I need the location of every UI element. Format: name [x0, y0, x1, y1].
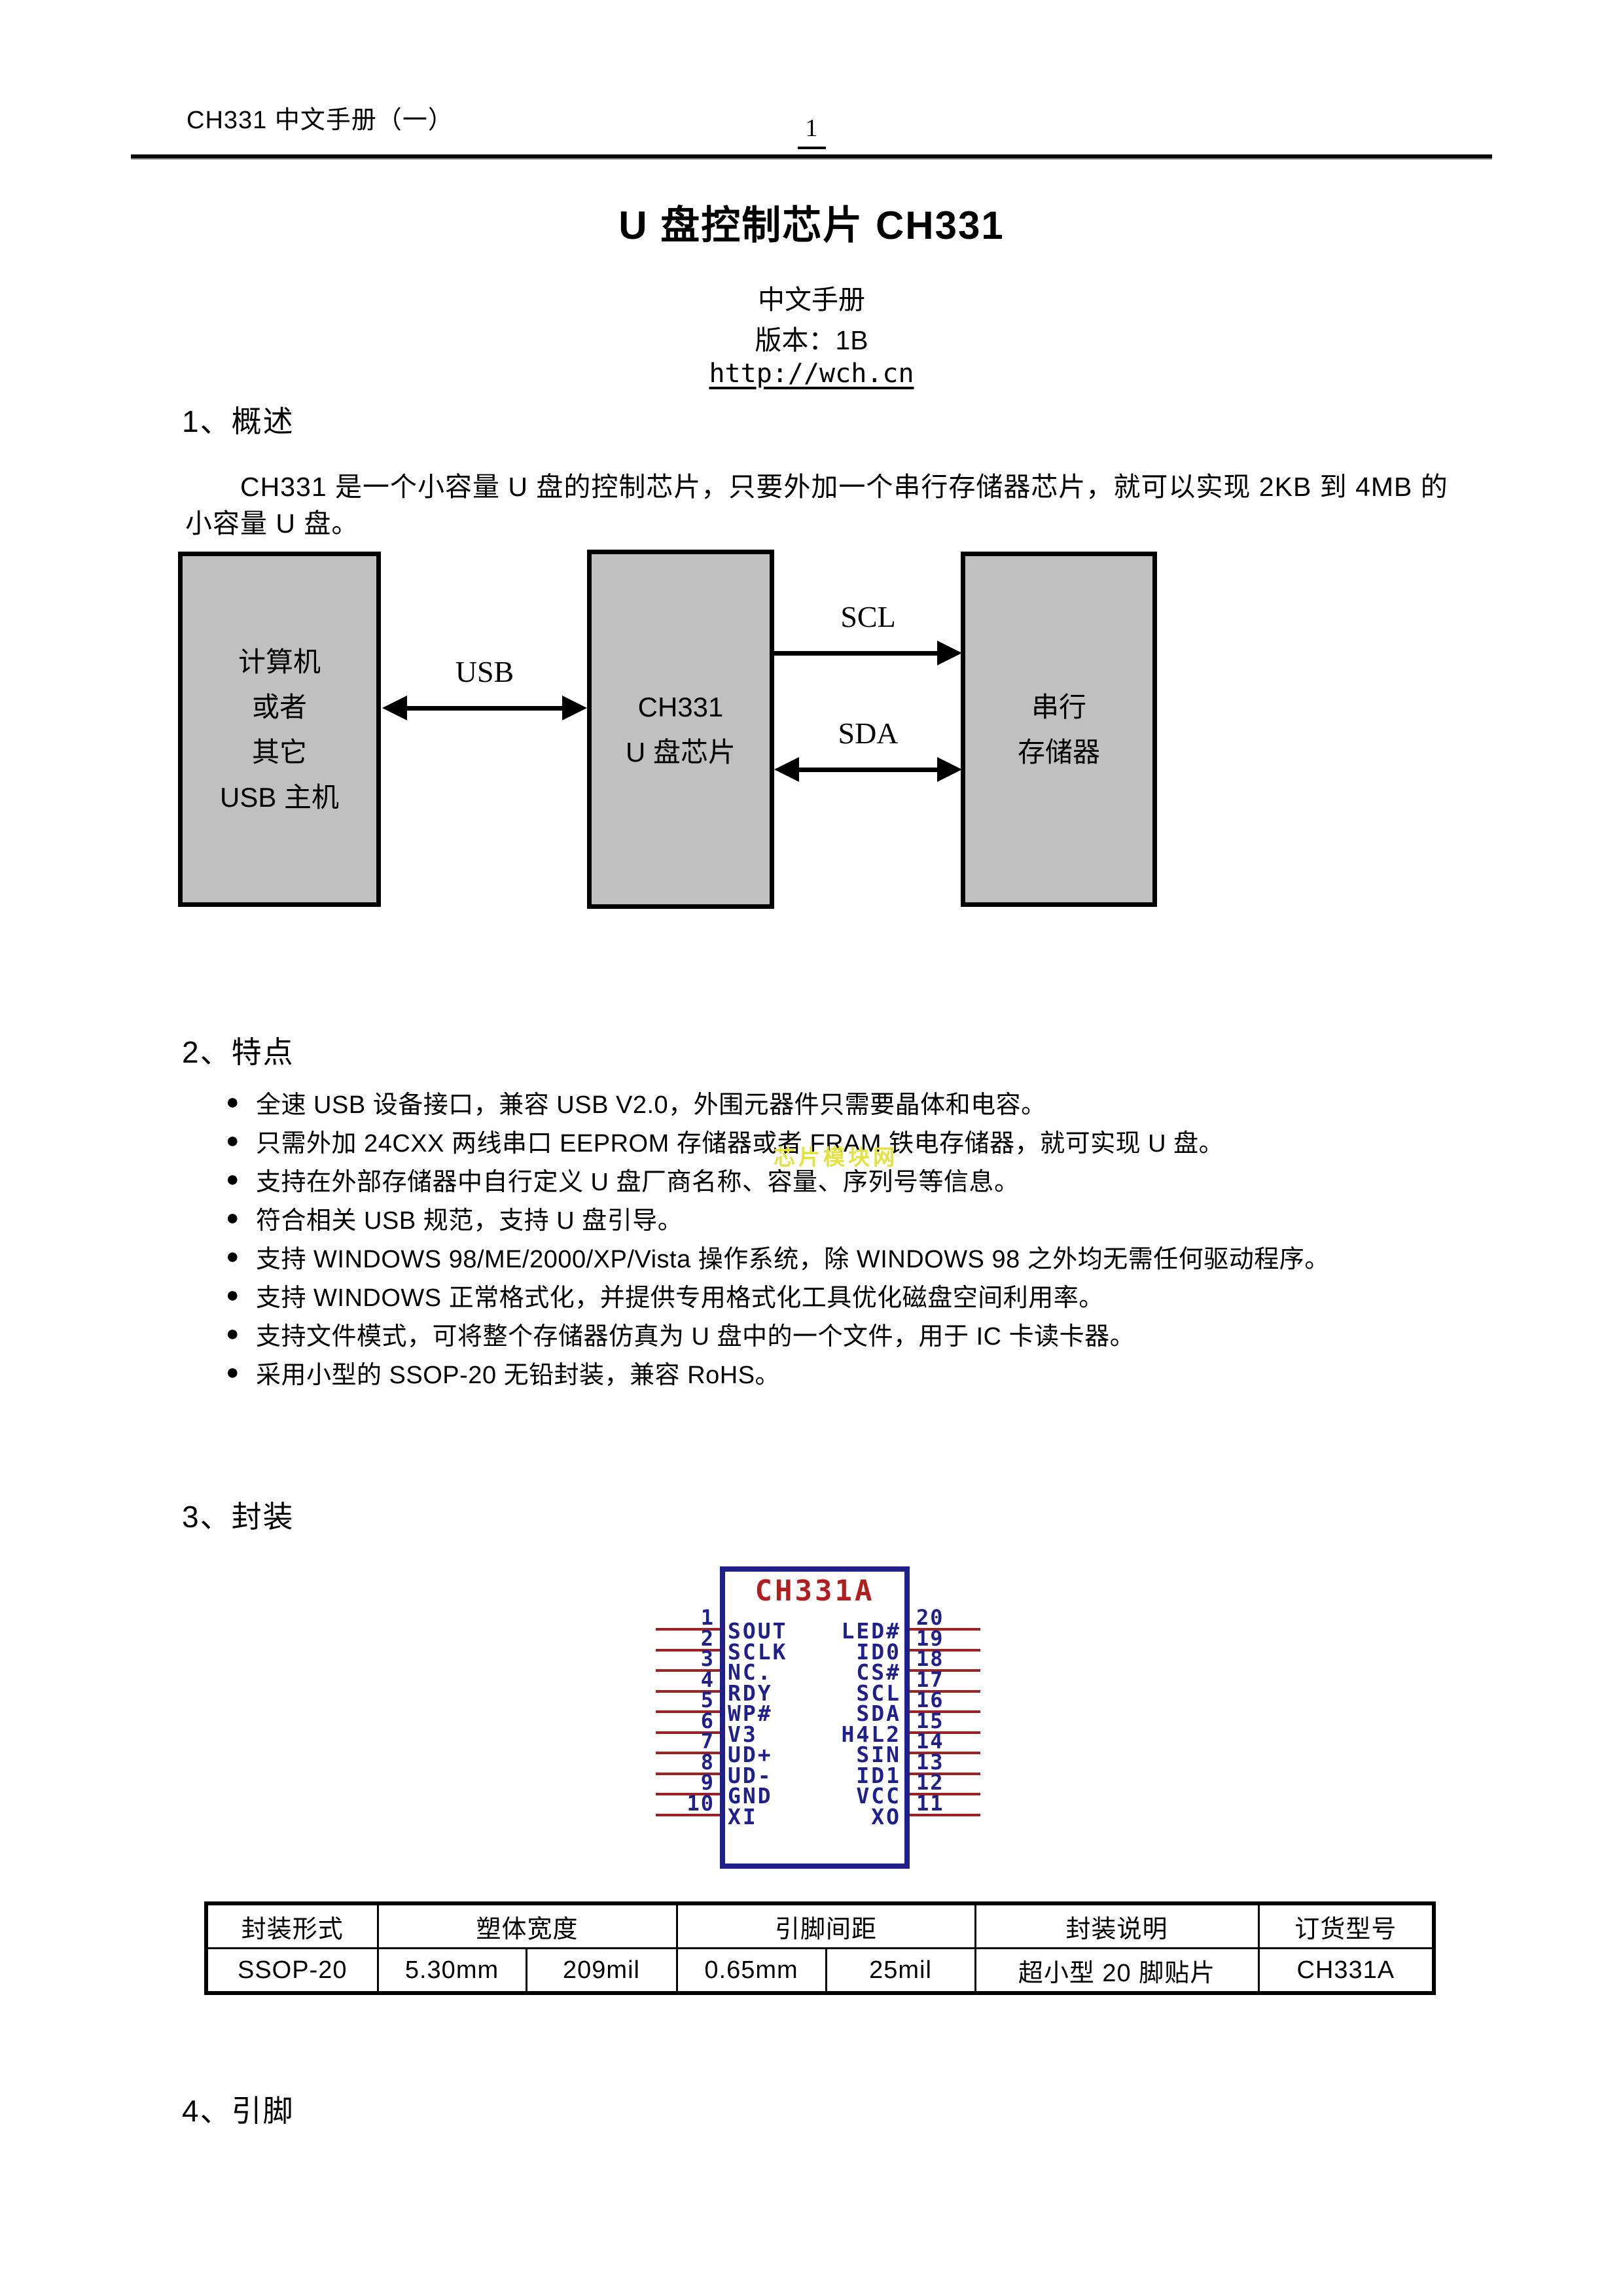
chip-box-line: U 盘芯片	[626, 730, 736, 775]
table-header-cell: 封装说明	[975, 1903, 1258, 1949]
bullet-icon: ●	[226, 1199, 256, 1237]
sda-arrow-label: SDA	[774, 716, 962, 751]
features-list: ●全速 USB 设备接口，兼容 USB V2.0，外围元器件只需要晶体和电容。 …	[226, 1083, 1535, 1392]
section-heading-pins: 4、引脚	[182, 2087, 294, 2130]
table-cell: SSOP-20	[206, 1949, 378, 1994]
feature-item: ●支持 WINDOWS 98/ME/2000/XP/Vista 操作系统，除 W…	[226, 1237, 1535, 1276]
bullet-icon: ●	[226, 1160, 256, 1199]
mem-box-line: 串行	[1031, 684, 1086, 730]
table-cell: 25mil	[826, 1949, 975, 1994]
host-box-line: 其它	[252, 730, 307, 775]
feature-item: ●支持文件模式，可将整个存储器仿真为 U 盘中的一个文件，用于 IC 卡读卡器。	[226, 1315, 1535, 1353]
header-rule	[131, 154, 1492, 160]
pin-label: XI	[728, 1806, 758, 1828]
chip-box-line: CH331	[638, 684, 724, 730]
sda-arrowhead-left-icon	[774, 757, 799, 782]
feature-text: 全速 USB 设备接口，兼容 USB V2.0，外围元器件只需要晶体和电容。	[256, 1084, 1046, 1120]
website-link-row: http://wch.cn	[0, 359, 1623, 389]
diagram-box-ch331: CH331 U 盘芯片	[587, 550, 774, 909]
table-header-cell: 塑体宽度	[378, 1903, 677, 1949]
section-heading-overview: 1、概述	[182, 398, 294, 441]
scl-arrow-line	[774, 651, 940, 656]
pin-number: 11	[916, 1793, 988, 1814]
document-page: CH331 中文手册（一） 1 U 盘控制芯片 CH331 中文手册 版本：1B…	[0, 0, 1623, 2296]
pin-number: 18	[916, 1648, 988, 1669]
pin-number: 9	[654, 1772, 715, 1793]
pin-label: XO	[776, 1806, 901, 1828]
bullet-icon: ●	[226, 1315, 256, 1353]
table-header-cell: 封装形式	[206, 1903, 378, 1949]
package-table-wrap: 封装形式 塑体宽度 引脚间距 封装说明 订货型号 SSOP-20 5.30mm …	[204, 1901, 1436, 1995]
host-box-line: 或者	[252, 684, 307, 730]
page-title: U 盘控制芯片 CH331	[0, 194, 1623, 251]
feature-item: ●支持 WINDOWS 正常格式化，并提供专用格式化工具优化磁盘空间利用率。	[226, 1276, 1535, 1315]
feature-text: 支持文件模式，可将整个存储器仿真为 U 盘中的一个文件，用于 IC 卡读卡器。	[256, 1316, 1135, 1352]
diagram-box-usb-host: 计算机 或者 其它 USB 主机	[178, 552, 381, 907]
table-cell: 209mil	[526, 1949, 677, 1994]
bullet-icon: ●	[226, 1083, 256, 1122]
page-number: 1	[0, 114, 1623, 149]
feature-text: 符合相关 USB 规范，支持 U 盘引导。	[256, 1200, 683, 1236]
mem-box-line: 存储器	[1018, 730, 1100, 775]
sda-arrow-line	[796, 768, 938, 772]
table-cell: CH331A	[1258, 1949, 1434, 1994]
overview-paragraph-line1: CH331 是一个小容量 U 盘的控制芯片，只要外加一个串行存储器芯片，就可以实…	[240, 465, 1448, 504]
section-heading-features: 2、特点	[182, 1029, 294, 1072]
feature-text: 支持 WINDOWS 98/ME/2000/XP/Vista 操作系统，除 WI…	[256, 1239, 1330, 1275]
table-cell: 0.65mm	[677, 1949, 826, 1994]
bullet-icon: ●	[226, 1122, 256, 1160]
table-header-cell: 引脚间距	[677, 1903, 975, 1949]
usb-arrow-line	[404, 706, 564, 711]
website-link[interactable]: http://wch.cn	[709, 359, 914, 389]
bullet-icon: ●	[226, 1276, 256, 1315]
host-box-line: USB 主机	[220, 775, 339, 820]
usb-arrow-label: USB	[382, 654, 587, 689]
manual-subtitle: 中文手册	[0, 277, 1623, 317]
pin-number: 7	[654, 1731, 715, 1752]
feature-text: 采用小型的 SSOP-20 无铅封装，兼容 RoHS。	[256, 1354, 780, 1390]
overview-paragraph-line2: 小容量 U 盘。	[185, 501, 359, 540]
feature-item: ●全速 USB 设备接口，兼容 USB V2.0，外围元器件只需要晶体和电容。	[226, 1083, 1535, 1122]
chip-name: CH331A	[720, 1574, 910, 1608]
pin-number: 1	[654, 1607, 715, 1628]
pin-number: 5	[654, 1689, 715, 1710]
table-header-cell: 订货型号	[1258, 1903, 1434, 1949]
feature-text: 支持在外部存储器中自行定义 U 盘厂商名称、容量、序列号等信息。	[256, 1161, 1020, 1197]
section-heading-package: 3、封装	[182, 1493, 294, 1536]
pin-number: 16	[916, 1689, 988, 1710]
scl-arrowhead-right-icon	[937, 641, 962, 665]
host-box-line: 计算机	[238, 639, 321, 684]
pin-number: 20	[916, 1607, 988, 1628]
chip-pinout-diagram: CH331A 1 SOUT 20 LED# 2 SCLK 19 ID0 3 NC…	[654, 1564, 982, 1878]
scl-arrow-label: SCL	[774, 599, 962, 634]
feature-item: ●符合相关 USB 规范，支持 U 盘引导。	[226, 1199, 1535, 1237]
page-number-value: 1	[798, 114, 826, 149]
package-table: 封装形式 塑体宽度 引脚间距 封装说明 订货型号 SSOP-20 5.30mm …	[204, 1901, 1436, 1995]
bullet-icon: ●	[226, 1237, 256, 1276]
feature-item: ●采用小型的 SSOP-20 无铅封装，兼容 RoHS。	[226, 1353, 1535, 1392]
pin-number: 10	[654, 1793, 715, 1814]
pin-number: 12	[916, 1772, 988, 1793]
table-cell: 超小型 20 脚贴片	[975, 1949, 1258, 1994]
sda-arrowhead-right-icon	[937, 757, 962, 782]
diagram-box-serial-memory: 串行 存储器	[961, 552, 1157, 907]
feature-text: 支持 WINDOWS 正常格式化，并提供专用格式化工具优化磁盘空间利用率。	[256, 1277, 1104, 1313]
usb-arrowhead-left-icon	[382, 696, 407, 720]
table-row: SSOP-20 5.30mm 209mil 0.65mm 25mil 超小型 2…	[206, 1949, 1434, 1994]
table-header-row: 封装形式 塑体宽度 引脚间距 封装说明 订货型号	[206, 1903, 1434, 1949]
pin-number: 3	[654, 1648, 715, 1669]
feature-text: 只需外加 24CXX 两线串口 EEPROM 存储器或者 FRAM 铁电存储器，…	[256, 1123, 1224, 1159]
pin-number: 14	[916, 1731, 988, 1752]
watermark-text: 芯片模块网	[774, 1140, 898, 1171]
usb-arrowhead-right-icon	[562, 696, 587, 720]
version-text: 版本：1B	[0, 318, 1623, 357]
bullet-icon: ●	[226, 1353, 256, 1392]
table-cell: 5.30mm	[378, 1949, 526, 1994]
